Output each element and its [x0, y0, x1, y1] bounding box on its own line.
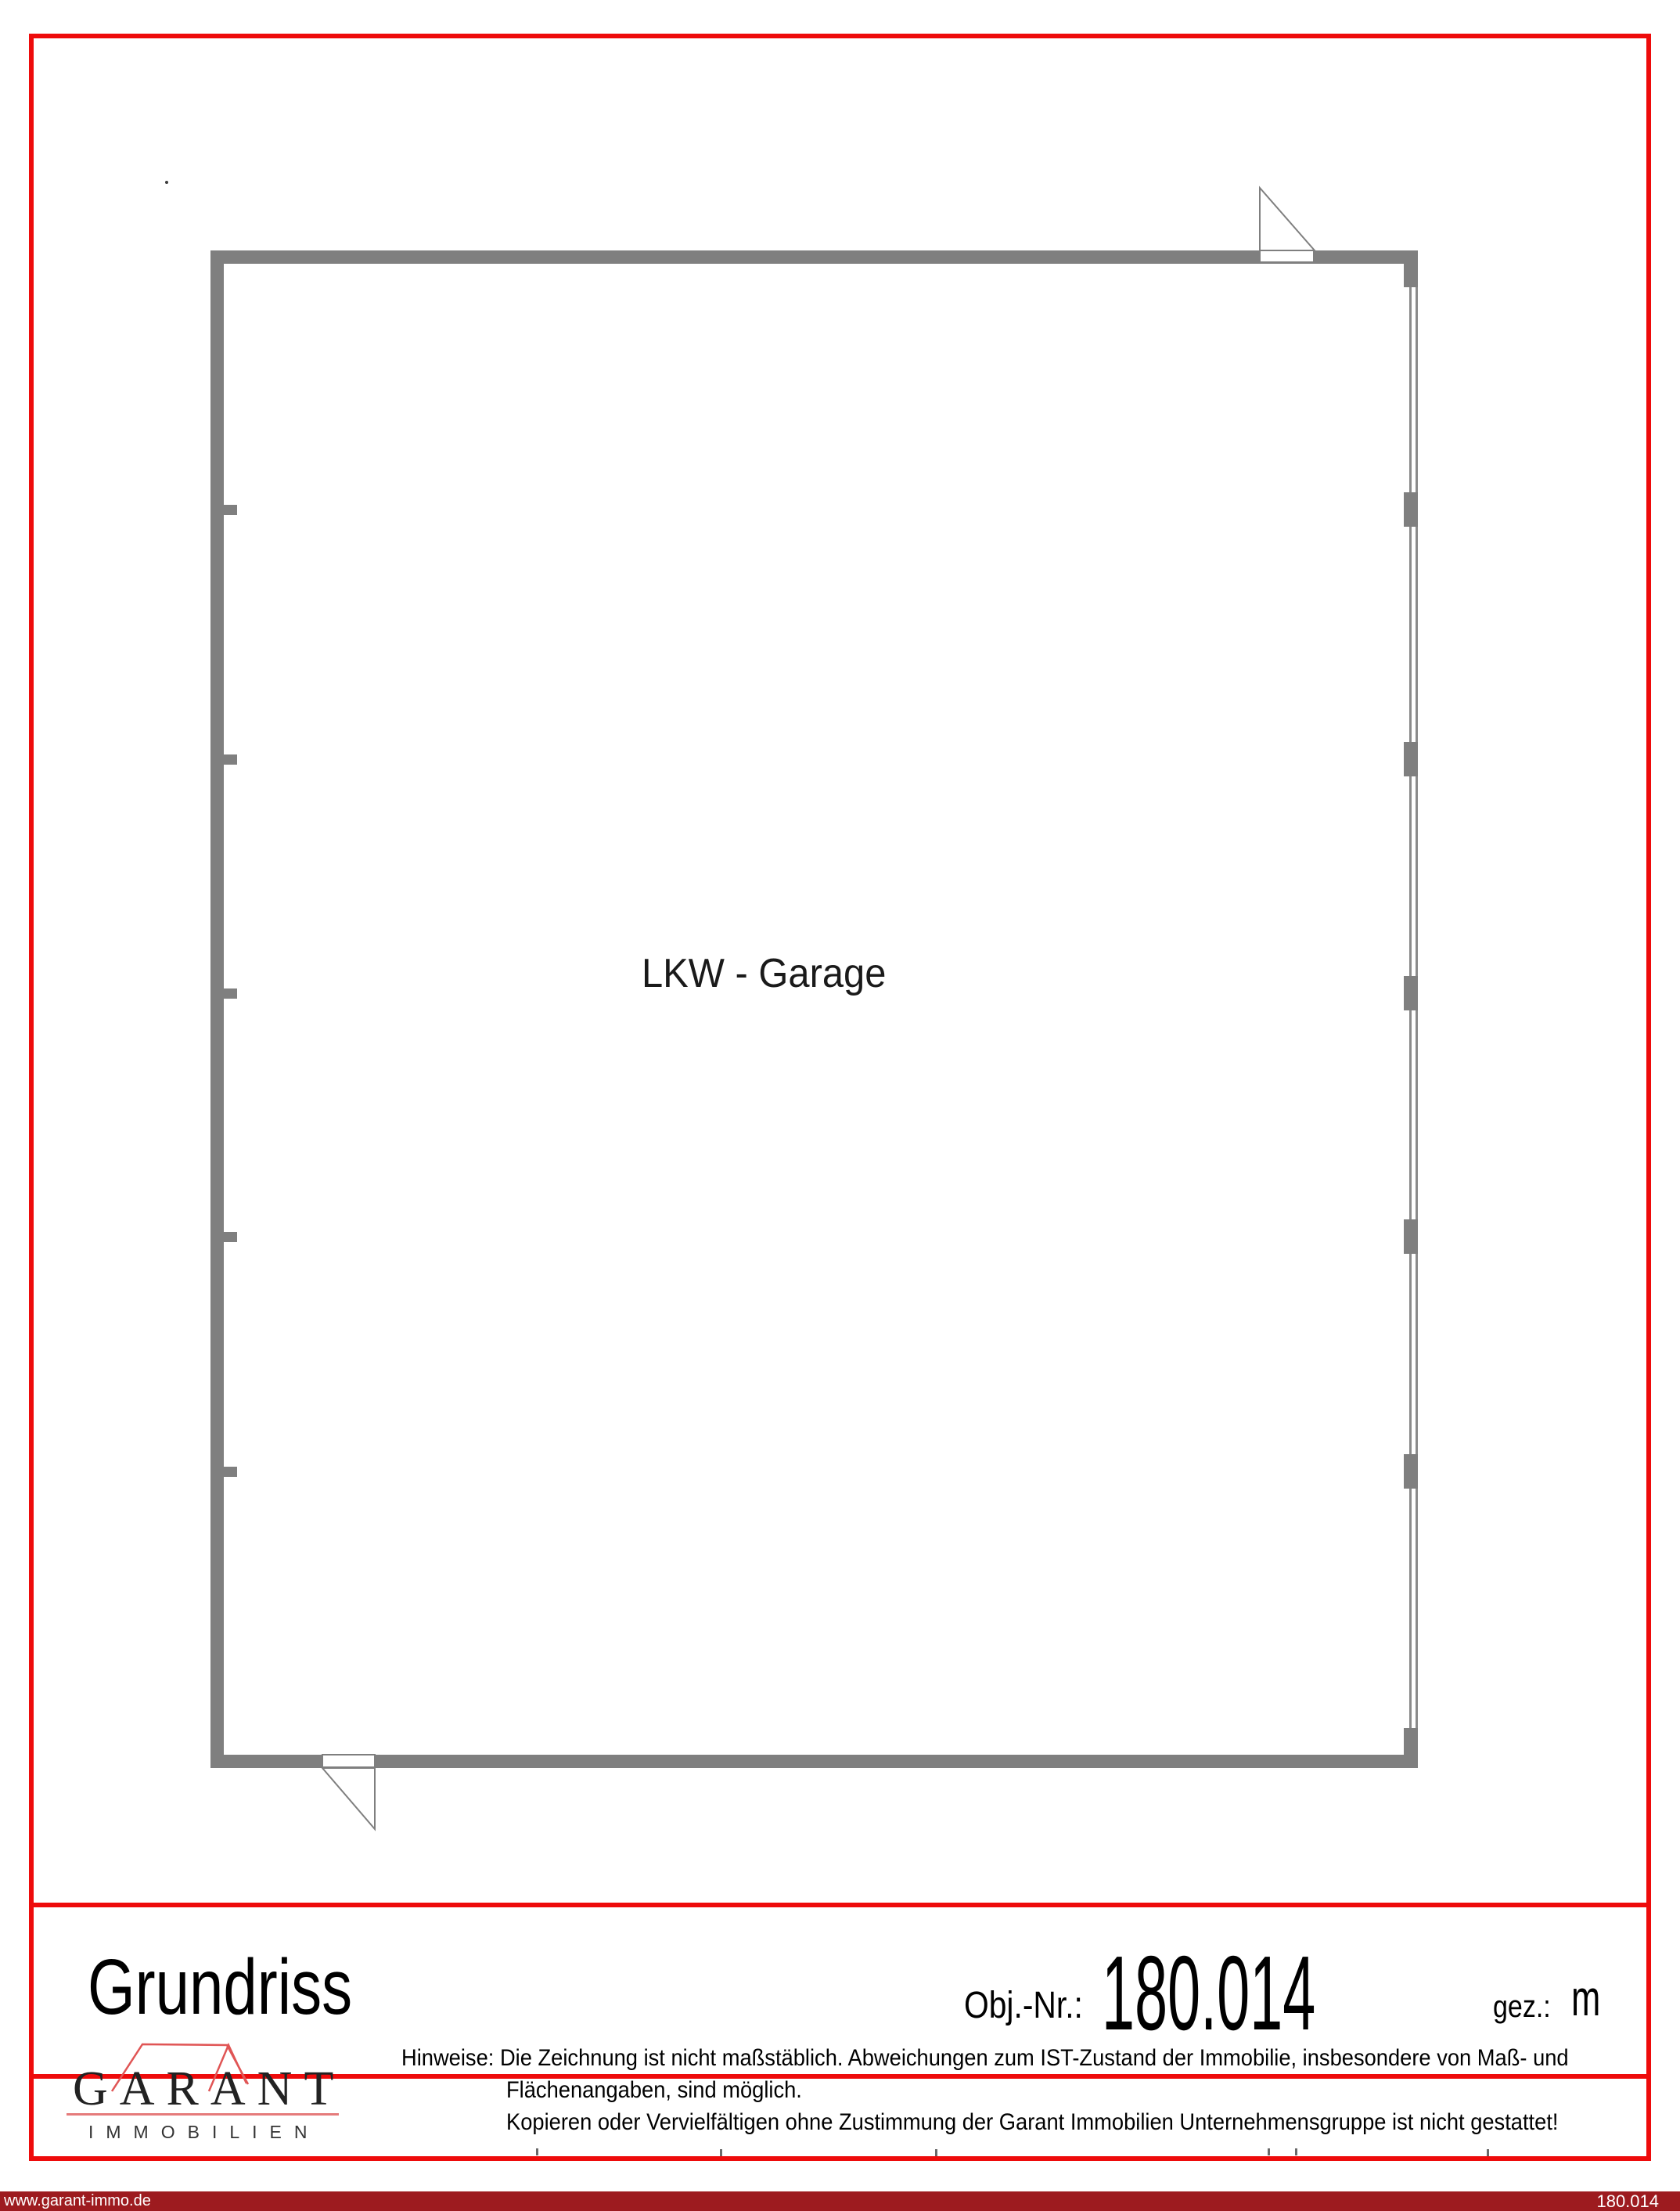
garant-underline	[67, 2113, 339, 2116]
footer-object-number: 180.014	[1596, 2191, 1659, 2211]
disclaimer-line-1-text: Die Zeichnung ist nicht maßstäblich. Abw…	[500, 2045, 1569, 2071]
right-wall-pillar	[1404, 1454, 1418, 1489]
left-wall-pilaster-tab	[224, 1232, 237, 1242]
footer-bar: www.garant-immo.de 180.014	[0, 2191, 1680, 2211]
disclaimer-line-3: Kopieren oder Vervielfältigen ohne Zusti…	[506, 2111, 1559, 2134]
door-leaf-top	[1259, 250, 1315, 263]
clipped-text-remnant	[1268, 2148, 1270, 2155]
left-wall-pilaster-tab	[224, 1467, 237, 1477]
wall-left	[210, 250, 224, 1768]
left-wall-pilaster-tab	[224, 754, 237, 765]
drawn-by-value: m	[1571, 1973, 1600, 2023]
page-border-frame	[29, 34, 1651, 2161]
disclaimer-label: Hinweise:	[401, 2045, 494, 2071]
wall-bottom	[210, 1755, 1418, 1768]
disclaimer-line-2: Flächenangaben, sind möglich.	[506, 2079, 802, 2102]
right-wall-pillar	[1404, 976, 1418, 1010]
corner-block-top-right	[1404, 250, 1418, 287]
drawn-by-label: gez.:	[1493, 1991, 1551, 2022]
disclaimer-line-1: Hinweise: Die Zeichnung ist nicht maßstä…	[401, 2047, 1569, 2070]
corner-block-bottom-right	[1404, 1728, 1418, 1768]
garant-wordmark: GARANT	[73, 2065, 345, 2113]
stray-dot	[165, 181, 168, 184]
object-number-label: Obj.-Nr.:	[964, 1987, 1083, 2025]
clipped-text-remnant	[1487, 2149, 1489, 2156]
clipped-text-remnant	[1295, 2148, 1297, 2155]
right-wall-pillar	[1404, 742, 1418, 776]
garant-subtitle: IMMOBILIEN	[88, 2123, 319, 2141]
clipped-text-remnant	[536, 2148, 538, 2155]
page-title: Grundriss	[88, 1948, 352, 2026]
object-number-value: 180.014	[1102, 1940, 1315, 2046]
left-wall-pilaster-tab	[224, 505, 237, 515]
left-wall-pilaster-tab	[224, 988, 237, 999]
document-page: LKW - Garage Grundriss Obj.-Nr.: 180.014…	[0, 0, 1680, 2211]
separator-line-above-title-band	[34, 1903, 1646, 1907]
right-wall-pillar	[1404, 492, 1418, 527]
room-label: LKW - Garage	[642, 953, 886, 994]
door-swing-top-icon	[1256, 184, 1318, 254]
clipped-text-remnant	[935, 2149, 937, 2156]
clipped-text-remnant	[720, 2149, 722, 2156]
right-wall-pillar	[1404, 1219, 1418, 1254]
wall-top	[210, 250, 1418, 264]
door-swing-bottom-icon	[318, 1766, 381, 1833]
footer-website: www.garant-immo.de	[4, 2191, 151, 2211]
